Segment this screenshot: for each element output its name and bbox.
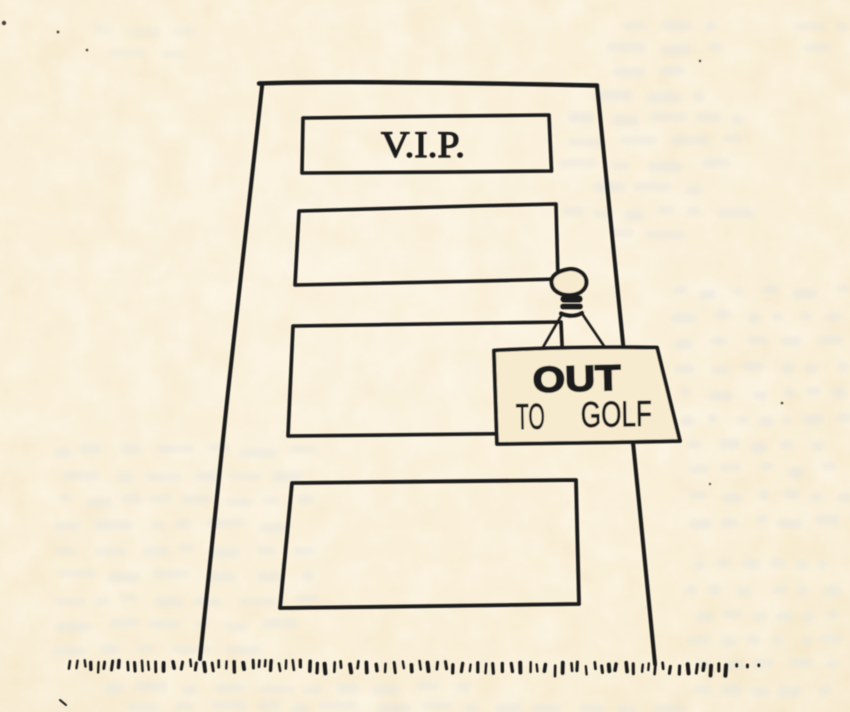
svg-text:GOLF: GOLF (580, 393, 652, 435)
svg-text:V.I.P.: V.I.P. (381, 125, 465, 166)
svg-text:TO: TO (516, 396, 546, 437)
